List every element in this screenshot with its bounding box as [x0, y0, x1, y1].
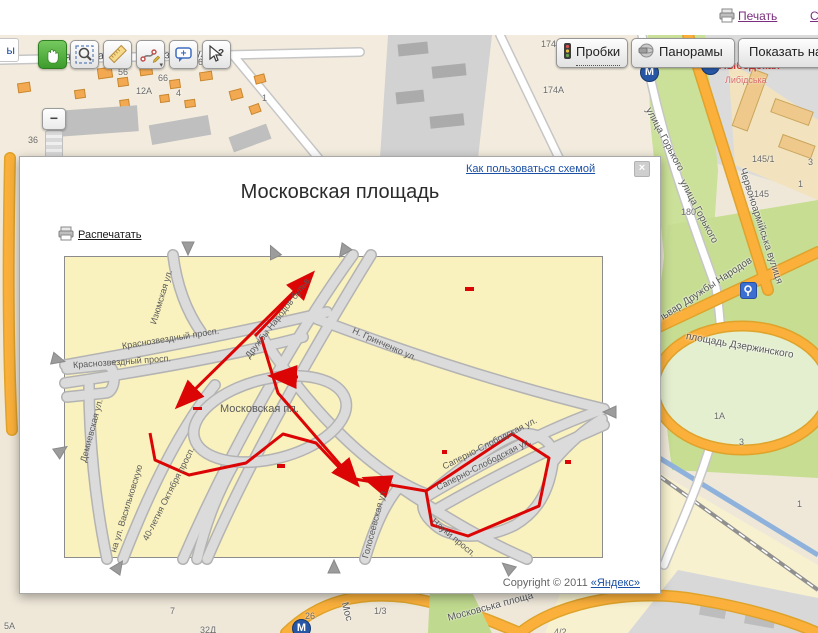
hand-tool-button[interactable] — [38, 40, 67, 69]
ruler-tool-button[interactable] — [103, 40, 132, 69]
building-number: 174А — [543, 85, 564, 95]
building-number: 145 — [754, 189, 769, 199]
svg-text:?: ? — [218, 48, 224, 59]
printer-icon[interactable] — [719, 8, 735, 28]
left-panel-tab[interactable]: ы — [0, 38, 19, 62]
route-mark — [465, 287, 474, 291]
scheme-entry-arrow-icon — [327, 558, 341, 574]
panoramas-button[interactable]: Панорамы — [631, 38, 735, 68]
panorama-icon — [638, 43, 655, 61]
metro-station-sublabel: Либідська — [725, 75, 767, 85]
svg-text:+: + — [181, 49, 187, 60]
how-to-use-scheme-link[interactable]: Как пользоваться схемой — [466, 163, 595, 175]
reprint-link[interactable]: Распечатать — [78, 229, 141, 241]
route-dropdown-caret[interactable]: ▾ — [159, 61, 163, 69]
show-on-button-label: Показать на — [749, 39, 818, 65]
building-number: 12А — [136, 86, 152, 96]
building-number: 4 — [176, 88, 181, 98]
copyright-prefix: Copyright © 2011 — [503, 577, 591, 589]
yandex-link[interactable]: «Яндекс» — [591, 577, 640, 589]
building-number: 1А — [714, 411, 725, 421]
building-number: 180 — [681, 207, 696, 217]
close-icon[interactable]: × — [634, 161, 650, 177]
traffic-light-icon — [563, 43, 572, 63]
whats-here-tool-button[interactable]: ? — [202, 40, 231, 69]
building-number: 4/2 — [554, 627, 567, 633]
route-mark — [277, 464, 285, 468]
route-mark — [193, 407, 202, 410]
building-number: 7 — [170, 606, 175, 616]
metro-icon[interactable]: М — [292, 619, 311, 633]
building-number: 5А — [4, 621, 15, 631]
building-number: 3 — [808, 157, 813, 167]
panoramas-button-label: Панорамы — [659, 39, 723, 65]
clipped-link[interactable]: С — [810, 9, 818, 23]
building-number: 1/3 — [374, 606, 387, 616]
building-number: 145/1 — [752, 154, 775, 164]
add-comment-tool-button[interactable]: + — [169, 40, 198, 69]
scheme-label: Московская пл. — [220, 403, 299, 415]
traffic-button-label: Пробки — [576, 39, 620, 66]
building-number: 174 — [541, 39, 556, 49]
scheme-entry-arrow-icon — [181, 241, 195, 257]
building-number: 66 — [158, 73, 168, 83]
poi-icon[interactable] — [740, 282, 757, 299]
dialog-title: Московская площадь — [20, 181, 660, 204]
building-number: 32Д — [200, 625, 216, 633]
print-link[interactable]: Печать — [738, 9, 777, 23]
top-bar: Печать С — [0, 0, 818, 35]
printer-icon[interactable] — [58, 226, 74, 246]
scheme-graphics — [65, 257, 602, 557]
route-mark — [442, 450, 447, 454]
zoom-level-label: 36 — [28, 135, 38, 145]
building-number: 1 — [797, 499, 802, 509]
route-tool-button[interactable]: ▾ — [136, 40, 165, 69]
scheme-entry-arrow-icon — [601, 405, 617, 419]
magnifier-tool-button[interactable] — [70, 40, 99, 69]
building-number: 1 — [262, 93, 267, 103]
yandex-maps-screen: ская улицаВолзька вулицяулица Горькогоул… — [0, 0, 818, 633]
route-arrow — [273, 376, 298, 377]
zoom-out-button[interactable]: − — [42, 108, 66, 130]
traffic-button[interactable]: Пробки — [556, 38, 628, 68]
route-mark — [565, 460, 571, 464]
building-number: 1 — [798, 179, 803, 189]
copyright-text: Copyright © 2011 «Яндекс» — [20, 577, 640, 589]
building-number: 3 — [739, 437, 744, 447]
traffic-scheme: Изюмская ул.Краснозвездный просп.Красноз… — [64, 256, 603, 558]
show-on-button[interactable]: Показать на — [738, 38, 818, 68]
scheme-dialog: Как пользоваться схемой × Московская пло… — [19, 156, 661, 594]
